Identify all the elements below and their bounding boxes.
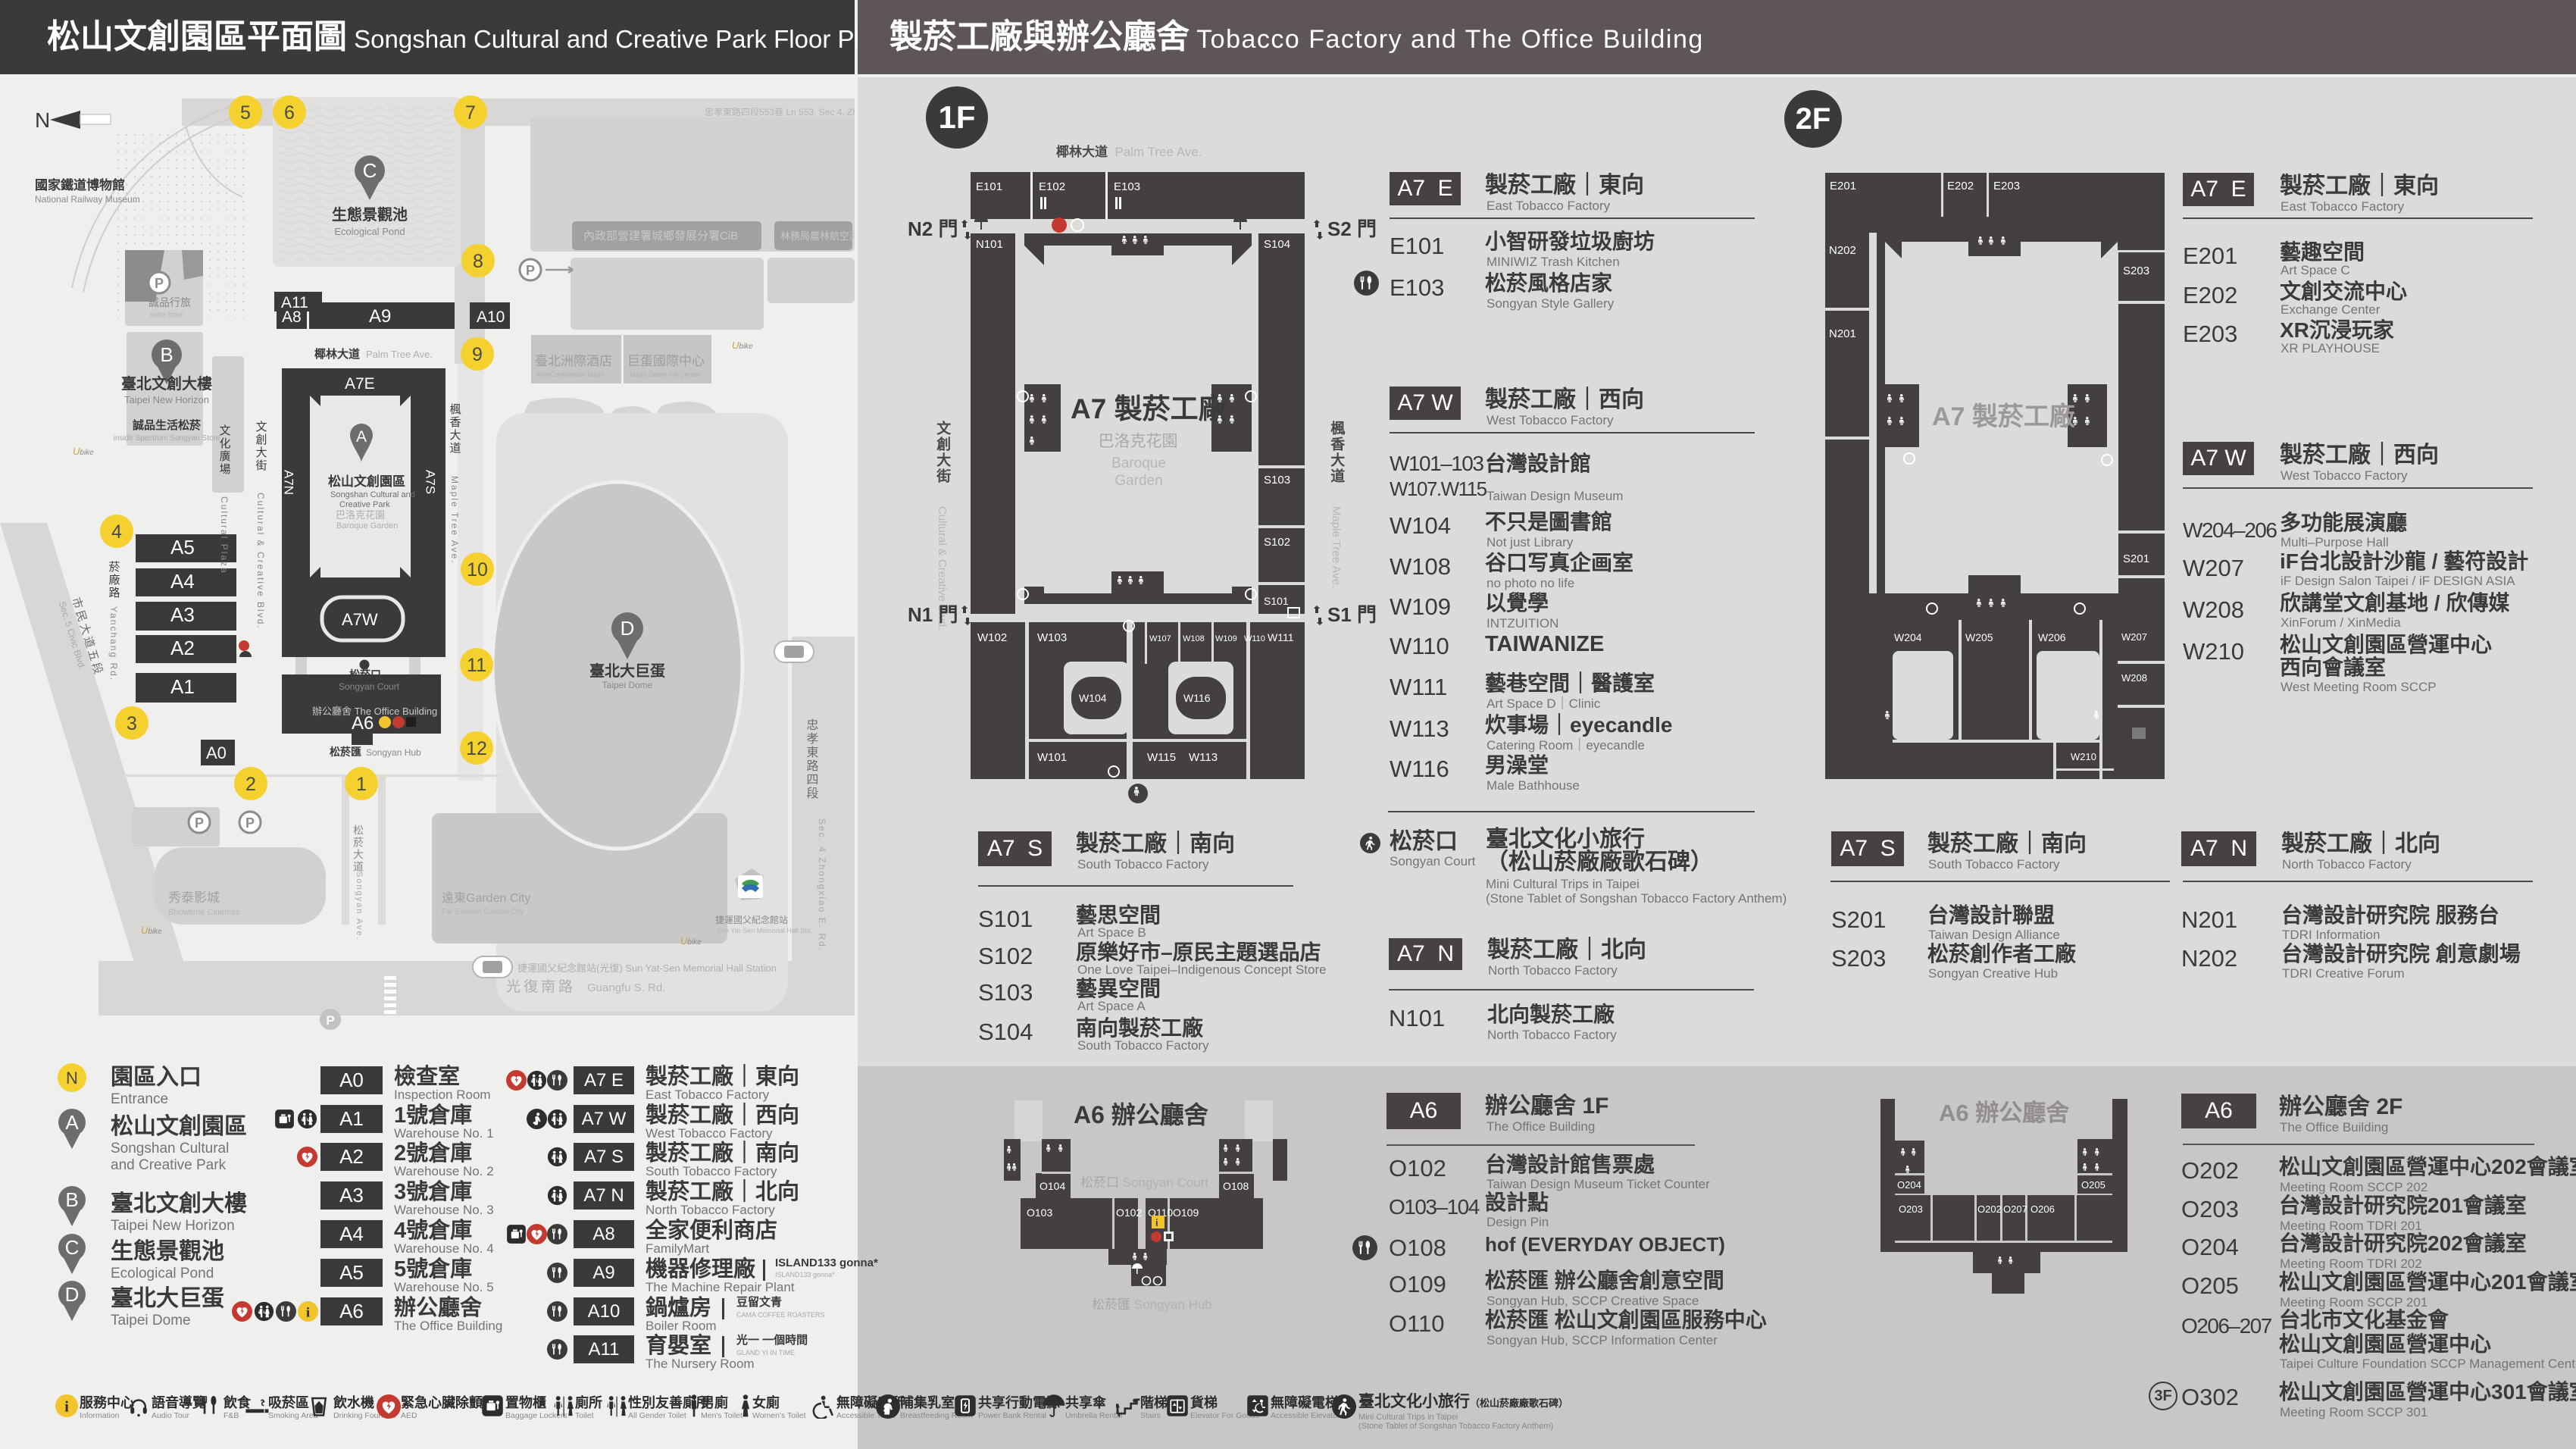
svg-text:W104: W104 — [1079, 692, 1107, 704]
svg-text:A6: A6 — [352, 713, 374, 734]
svg-text:Ubike: Ubike — [732, 340, 753, 351]
svg-text:W107: W107 — [1149, 634, 1171, 643]
svg-text:N: N — [35, 108, 50, 132]
svg-text:O103: O103 — [1027, 1206, 1052, 1219]
svg-text:Far Eastern Garden City: Far Eastern Garden City — [442, 908, 524, 916]
svg-text:巴洛克花園: 巴洛克花園 — [1099, 433, 1178, 450]
svg-text:誠品行旅: 誠品行旅 — [148, 296, 191, 308]
svg-text:A7 製菸工廠: A7 製菸工廠 — [1932, 402, 2075, 431]
svg-text:12: 12 — [466, 738, 487, 759]
svg-text:B: B — [160, 343, 173, 366]
svg-text:W103: W103 — [1037, 631, 1067, 644]
svg-text:InterContinental Taipei: InterContinental Taipei — [536, 371, 604, 378]
svg-text:A7W: A7W — [342, 610, 378, 629]
svg-text:W210: W210 — [2071, 751, 2096, 762]
svg-text:O207: O207 — [2003, 1203, 2027, 1215]
svg-text:D: D — [65, 1283, 80, 1306]
svg-text:E102: E102 — [1039, 180, 1065, 193]
svg-text:W205: W205 — [1965, 631, 1993, 643]
svg-text:W204: W204 — [1894, 631, 1922, 643]
svg-text:Taipei Dome: Taipei Dome — [602, 680, 653, 690]
svg-text:eslite hotel: eslite hotel — [150, 311, 183, 318]
svg-text:W102: W102 — [977, 631, 1007, 644]
svg-text:N: N — [66, 1069, 78, 1088]
svg-text:Songyan Ave.: Songyan Ave. — [355, 872, 364, 941]
svg-text:臺北文創大樓: 臺北文創大樓 — [121, 374, 212, 393]
svg-text:C: C — [65, 1236, 80, 1259]
svg-text:巨蛋國際中心: 巨蛋國際中心 — [627, 354, 705, 368]
svg-text:O204: O204 — [1897, 1179, 1921, 1191]
svg-text:林務局農林航空測量所: 林務局農林航空測量所 — [780, 230, 855, 242]
svg-text:Showtime Cinemas: Showtime Cinemas — [168, 908, 240, 917]
svg-text:N201: N201 — [1829, 327, 1856, 340]
svg-text:遠東Garden City: 遠東Garden City — [442, 891, 530, 905]
svg-text:7: 7 — [465, 102, 476, 124]
svg-text:P: P — [245, 815, 255, 831]
svg-text:辦公廳舍 The Office Building: 辦公廳舍 The Office Building — [312, 706, 437, 717]
svg-text:O205: O205 — [2081, 1179, 2106, 1191]
svg-text:內政部營建署城鄉發展分署CiB: 內政部營建署城鄉發展分署CiB — [583, 230, 738, 243]
svg-text:W109: W109 — [1215, 634, 1237, 643]
svg-text:國家鐵道博物館: 國家鐵道博物館 — [35, 177, 125, 192]
svg-text:松山文創園區: 松山文創園區 — [328, 474, 405, 489]
svg-text:忠孝東路四段: 忠孝東路四段 — [805, 718, 819, 800]
svg-text:光復南路: 光復南路 — [506, 978, 576, 995]
svg-text:A4: A4 — [170, 570, 195, 593]
svg-text:生態景觀池: 生態景觀池 — [332, 205, 408, 224]
svg-text:D: D — [621, 617, 635, 640]
svg-text:3: 3 — [127, 713, 137, 734]
svg-text:A5: A5 — [170, 536, 195, 559]
svg-text:楓香大道: 楓香大道 — [449, 403, 461, 455]
svg-text:Sec. 4 Zhongxiao E. Rd.: Sec. 4 Zhongxiao E. Rd. — [817, 818, 827, 952]
svg-text:i: i — [306, 1304, 310, 1319]
svg-text:松菸匯: 松菸匯 — [330, 746, 361, 758]
svg-text:捷運國父紀念館站: 捷運國父紀念館站 — [715, 914, 788, 925]
svg-text:S201: S201 — [2123, 552, 2149, 565]
svg-text:A7N: A7N — [282, 470, 296, 495]
svg-text:N202: N202 — [1829, 244, 1856, 257]
svg-text:Palm Tree Ave.: Palm Tree Ave. — [366, 349, 433, 360]
svg-text:inside Spectrum Songyan Store: inside Spectrum Songyan Store — [114, 434, 220, 443]
svg-text:P: P — [155, 276, 164, 291]
svg-text:S104: S104 — [1264, 238, 1290, 251]
svg-text:A2: A2 — [170, 637, 195, 659]
svg-text:N101: N101 — [976, 238, 1003, 251]
svg-text:誠品生活松菸: 誠品生活松菸 — [133, 418, 202, 432]
svg-text:松菸口: 松菸口 — [349, 668, 381, 681]
svg-text:S103: S103 — [1264, 474, 1290, 487]
svg-text:6: 6 — [284, 102, 295, 124]
svg-text:W207: W207 — [2121, 631, 2147, 643]
svg-text:A: A — [356, 428, 367, 446]
svg-text:Creative Park: Creative Park — [339, 500, 390, 509]
svg-text:Sun Yat-Sen Memorial Hall Sta.: Sun Yat-Sen Memorial Hall Sta. — [717, 927, 812, 934]
svg-text:文創大街: 文創大街 — [255, 421, 267, 472]
svg-text:2: 2 — [245, 774, 256, 795]
svg-text:National Railway Museum: National Railway Museum — [35, 194, 140, 205]
svg-text:O109: O109 — [1173, 1206, 1199, 1219]
svg-text:Songyan Hub: Songyan Hub — [366, 747, 421, 758]
svg-text:A: A — [65, 1111, 79, 1134]
svg-text:W113: W113 — [1189, 751, 1218, 764]
svg-text:Taipei Dome Intl Center: Taipei Dome Intl Center — [629, 371, 700, 378]
svg-text:臺北洲際酒店: 臺北洲際酒店 — [535, 354, 612, 368]
svg-text:A0: A0 — [206, 743, 227, 762]
svg-text:文化廣場: 文化廣場 — [218, 424, 231, 476]
svg-text:E202: E202 — [1947, 180, 1974, 192]
svg-text:Ubike: Ubike — [73, 446, 94, 457]
svg-text:A8: A8 — [282, 308, 302, 326]
svg-text:S102: S102 — [1264, 536, 1290, 549]
svg-text:Songyan Court: Songyan Court — [339, 681, 400, 692]
svg-text:E101: E101 — [976, 180, 1002, 193]
svg-text:i: i — [1155, 1217, 1158, 1228]
svg-text:Garden: Garden — [1114, 473, 1162, 489]
svg-text:W208: W208 — [2121, 672, 2147, 684]
svg-text:11: 11 — [467, 655, 486, 676]
svg-text:臺北大巨蛋: 臺北大巨蛋 — [589, 662, 665, 680]
svg-text:菸廠路: 菸廠路 — [108, 561, 120, 599]
svg-text:P: P — [526, 263, 535, 278]
svg-text:W108: W108 — [1183, 634, 1205, 643]
svg-text:W115: W115 — [1147, 751, 1176, 764]
svg-text:W116: W116 — [1183, 692, 1211, 704]
svg-text:C: C — [363, 159, 377, 182]
svg-text:E201: E201 — [1830, 180, 1856, 192]
svg-text:Songshan Cultural and: Songshan Cultural and — [330, 490, 415, 499]
svg-text:A7E: A7E — [345, 375, 375, 393]
svg-text:A9: A9 — [369, 306, 391, 327]
svg-text:S203: S203 — [2123, 264, 2149, 277]
svg-text:O206: O206 — [2030, 1203, 2055, 1215]
svg-text:Cultural Plaza: Cultural Plaza — [219, 496, 230, 574]
svg-text:Taipei New Horizon: Taipei New Horizon — [124, 394, 209, 405]
svg-text:5: 5 — [240, 102, 251, 124]
svg-text:E203: E203 — [1993, 180, 2020, 192]
svg-text:W206: W206 — [2038, 631, 2066, 643]
svg-text:Maple Tree Ave.: Maple Tree Ave. — [449, 476, 460, 565]
svg-text:捷運國父紀念館站(光復) Sun Yat-Sen Memor: 捷運國父紀念館站(光復) Sun Yat-Sen Memorial Hall S… — [517, 962, 777, 974]
svg-text:O104: O104 — [1039, 1180, 1065, 1192]
svg-text:10: 10 — [467, 559, 488, 581]
svg-text:O202: O202 — [1977, 1203, 2002, 1215]
svg-text:松菸大道: 松菸大道 — [352, 825, 364, 873]
svg-text:Yanchang Rd.: Yanchang Rd. — [108, 606, 119, 681]
svg-text:B: B — [65, 1188, 78, 1211]
svg-text:Ecological Pond: Ecological Pond — [334, 226, 405, 237]
svg-text:椰林大道: 椰林大道 — [314, 347, 360, 361]
svg-text:S101: S101 — [1264, 595, 1289, 607]
svg-text:i: i — [64, 1399, 69, 1416]
svg-text:O203: O203 — [1899, 1203, 1923, 1215]
svg-text:8: 8 — [473, 251, 483, 272]
svg-text:A7 製菸工廠: A7 製菸工廠 — [1071, 393, 1227, 424]
svg-text:1: 1 — [356, 774, 367, 795]
svg-text:忠孝東路四段553巷 Ln 553, Sec 4, Zhon: 忠孝東路四段553巷 Ln 553, Sec 4, Zhongxiao E. R… — [705, 106, 855, 117]
svg-text:秀泰影城: 秀泰影城 — [168, 890, 220, 905]
svg-text:W101: W101 — [1037, 751, 1067, 764]
svg-text:P: P — [195, 815, 204, 831]
svg-text:E103: E103 — [1114, 180, 1140, 193]
svg-text:A10: A10 — [477, 308, 505, 326]
svg-text:Baroque Garden: Baroque Garden — [336, 521, 398, 530]
svg-text:Baroque: Baroque — [1111, 455, 1166, 471]
svg-text:W111: W111 — [1268, 631, 1294, 643]
svg-text:Cultural & Creative Blvd.: Cultural & Creative Blvd. — [255, 493, 266, 630]
svg-text:A1: A1 — [170, 675, 195, 698]
svg-text:A7S: A7S — [424, 470, 438, 494]
svg-text:W110: W110 — [1244, 634, 1265, 643]
svg-text:O108: O108 — [1223, 1180, 1249, 1192]
svg-text:P: P — [326, 1013, 334, 1028]
svg-text:4: 4 — [111, 521, 122, 543]
svg-text:A3: A3 — [170, 603, 195, 626]
svg-text:9: 9 — [472, 344, 483, 365]
svg-text:Guangfu S. Rd.: Guangfu S. Rd. — [587, 981, 665, 994]
svg-text:巴洛克花園: 巴洛克花園 — [336, 509, 385, 521]
svg-text:O102: O102 — [1116, 1206, 1142, 1219]
